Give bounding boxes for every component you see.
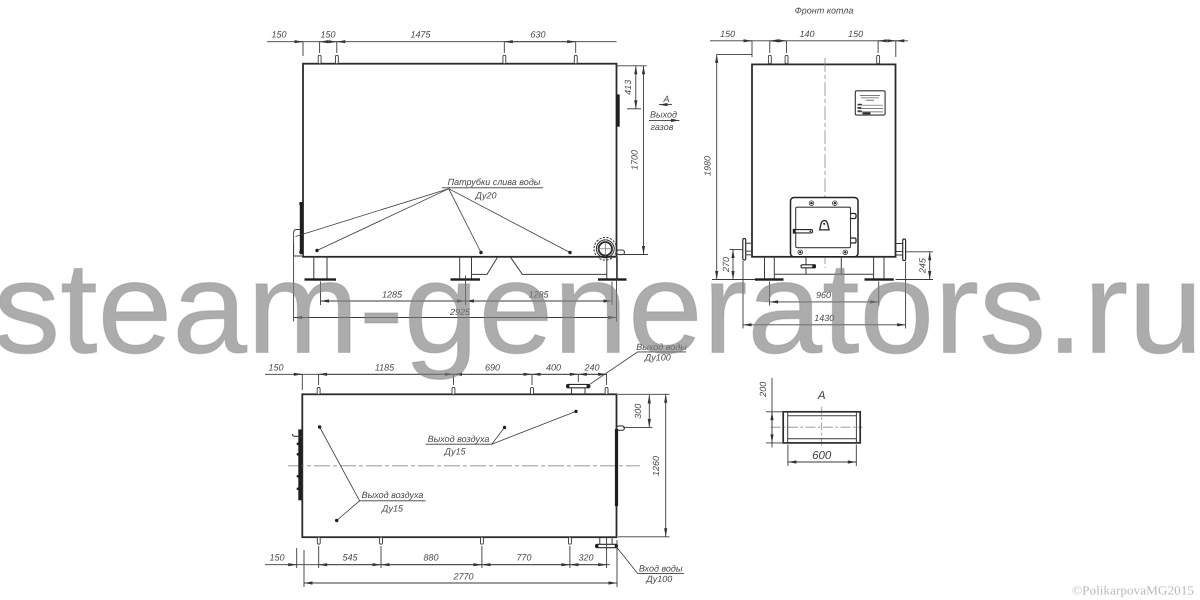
svg-text:1700: 1700 <box>630 150 640 170</box>
svg-text:1260: 1260 <box>651 456 661 476</box>
svg-text:Фронт котла: Фронт котла <box>795 6 854 16</box>
svg-text:А: А <box>817 390 826 402</box>
svg-text:320: 320 <box>578 553 593 563</box>
svg-text:©PolikarpovaMG2015: ©PolikarpovaMG2015 <box>1072 584 1194 598</box>
svg-text:А: А <box>662 94 669 104</box>
svg-text:Ду15: Ду15 <box>381 504 404 514</box>
svg-text:Вход воды: Вход воды <box>639 564 683 574</box>
svg-text:Выход: Выход <box>650 110 677 120</box>
svg-text:300: 300 <box>633 404 643 419</box>
svg-text:200: 200 <box>758 382 768 398</box>
svg-text:150: 150 <box>271 30 286 40</box>
svg-text:545: 545 <box>342 553 358 563</box>
svg-text:газов: газов <box>651 122 674 132</box>
svg-text:Ду15: Ду15 <box>444 447 467 457</box>
svg-text:steam-generators.ru: steam-generators.ru <box>0 235 1200 381</box>
svg-text:880: 880 <box>423 553 438 563</box>
svg-text:770: 770 <box>516 553 531 563</box>
svg-text:413: 413 <box>623 80 633 95</box>
svg-text:150: 150 <box>320 30 335 40</box>
svg-text:Выход воздуха: Выход воздуха <box>362 490 424 500</box>
svg-text:150: 150 <box>269 553 284 563</box>
svg-text:Ду100: Ду100 <box>645 574 672 584</box>
svg-text:2770: 2770 <box>452 571 473 581</box>
svg-text:600: 600 <box>812 450 832 462</box>
svg-text:1475: 1475 <box>410 30 431 40</box>
svg-text:150: 150 <box>720 29 735 39</box>
svg-text:Выход воздуха: Выход воздуха <box>428 434 490 444</box>
svg-text:630: 630 <box>530 30 545 40</box>
svg-text:140: 140 <box>799 29 814 39</box>
svg-text:150: 150 <box>848 29 863 39</box>
svg-text:Патрубки слива воды: Патрубки слива воды <box>448 177 541 187</box>
svg-text:1980: 1980 <box>703 156 713 176</box>
svg-text:Ду20: Ду20 <box>475 191 497 201</box>
